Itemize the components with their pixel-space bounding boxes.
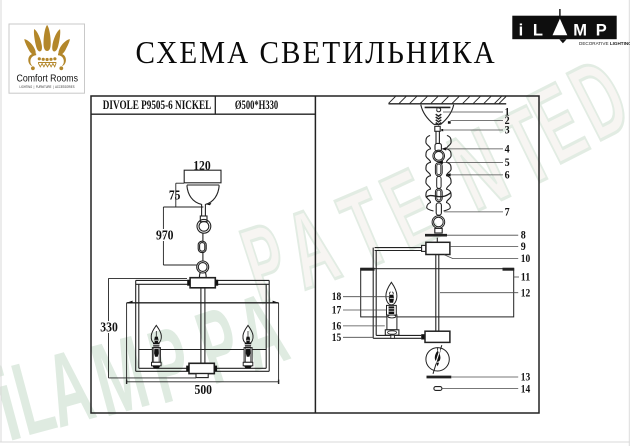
svg-text:L: L [533,21,543,39]
svg-text:10: 10 [521,253,531,265]
svg-text:DIVOLE P9505-6 NICKEL: DIVOLE P9505-6 NICKEL [103,98,212,112]
svg-text:LIGHTING | FURNITURE | ACC: LIGHTING | FURNITURE | ACCESSORIES [20,85,75,89]
svg-text:3: 3 [505,125,510,137]
svg-text:17: 17 [332,305,342,317]
svg-text:15: 15 [332,332,342,344]
svg-text:330: 330 [100,320,118,335]
svg-text:9: 9 [521,241,526,253]
svg-text:4: 4 [505,143,510,155]
svg-text:6: 6 [505,169,510,181]
svg-text:12: 12 [521,287,531,299]
svg-text:DECORATIVE LIGHTING: DECORATIVE LIGHTING [579,41,630,46]
svg-text:11: 11 [521,272,531,284]
svg-text:18: 18 [332,291,342,303]
svg-text:Comfort Rooms: Comfort Rooms [17,73,79,85]
svg-text:13: 13 [521,372,531,384]
svg-text:14: 14 [521,383,531,395]
svg-text:i: i [519,21,524,39]
svg-text:5: 5 [505,157,510,169]
svg-text:970: 970 [156,228,174,243]
svg-text:8: 8 [521,230,526,242]
svg-text:P: P [596,21,607,39]
svg-text:СХЕМА СВЕТИЛЬНИКА: СХЕМА СВЕТИЛЬНИКА [136,35,497,70]
svg-text:Ø500*H330: Ø500*H330 [235,98,278,112]
svg-text:500: 500 [195,382,213,397]
svg-text:16: 16 [332,321,342,333]
svg-text:M: M [573,21,587,39]
svg-text:7: 7 [505,206,510,218]
svg-text:75: 75 [169,188,181,203]
